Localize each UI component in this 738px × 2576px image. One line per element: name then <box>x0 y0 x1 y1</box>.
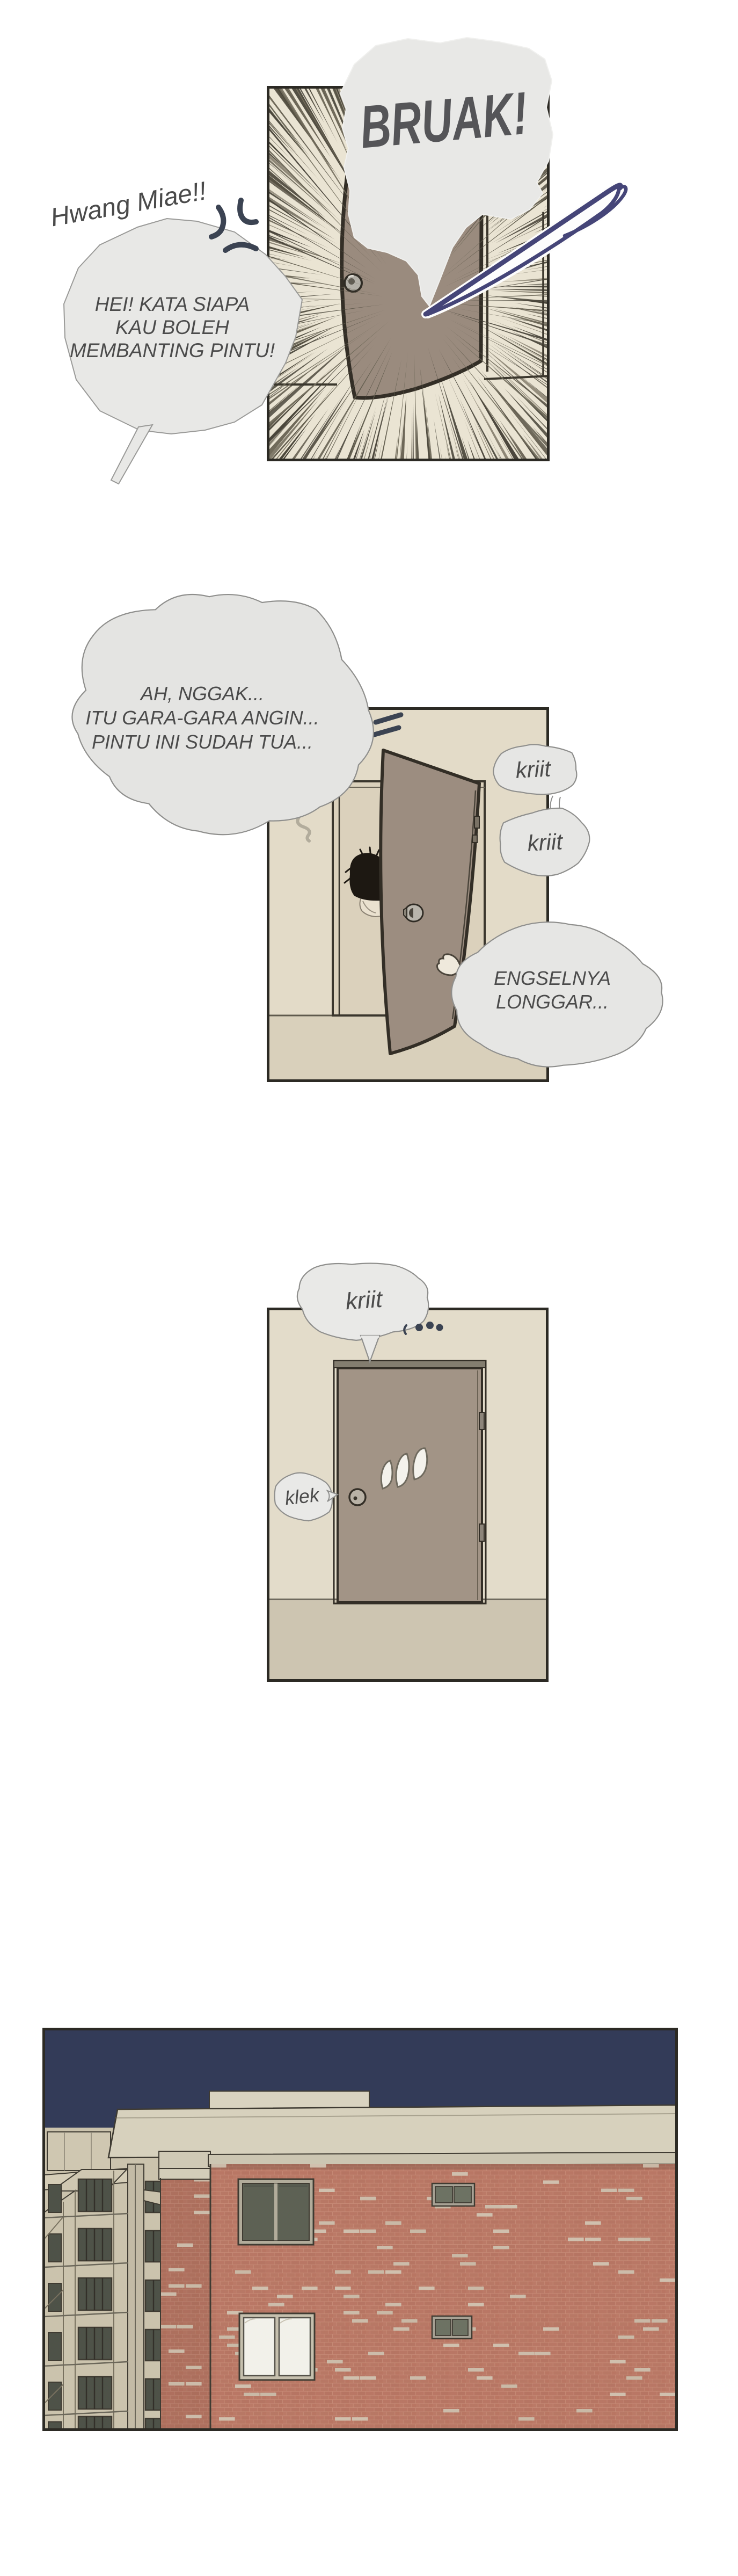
svg-text:kriit: kriit <box>345 1286 384 1315</box>
svg-text:AH, NGGAK...: AH, NGGAK... <box>140 683 264 705</box>
svg-text:klek: klek <box>284 1484 321 1510</box>
svg-text:ENGSELNYA: ENGSELNYA <box>494 967 611 989</box>
svg-text:kriit: kriit <box>527 829 564 855</box>
svg-text:PINTU INI SUDAH TUA...: PINTU INI SUDAH TUA... <box>92 731 313 753</box>
svg-text:KAU BOLEH: KAU BOLEH <box>115 316 229 338</box>
svg-text:HEI! KATA SIAPA: HEI! KATA SIAPA <box>95 293 250 315</box>
svg-text:kriit: kriit <box>515 756 552 782</box>
svg-text:MEMBANTING PINTU!: MEMBANTING PINTU! <box>70 339 275 361</box>
svg-text:ITU GARA-GARA ANGIN...: ITU GARA-GARA ANGIN... <box>85 707 319 729</box>
svg-text:LONGGAR...: LONGGAR... <box>496 991 609 1013</box>
